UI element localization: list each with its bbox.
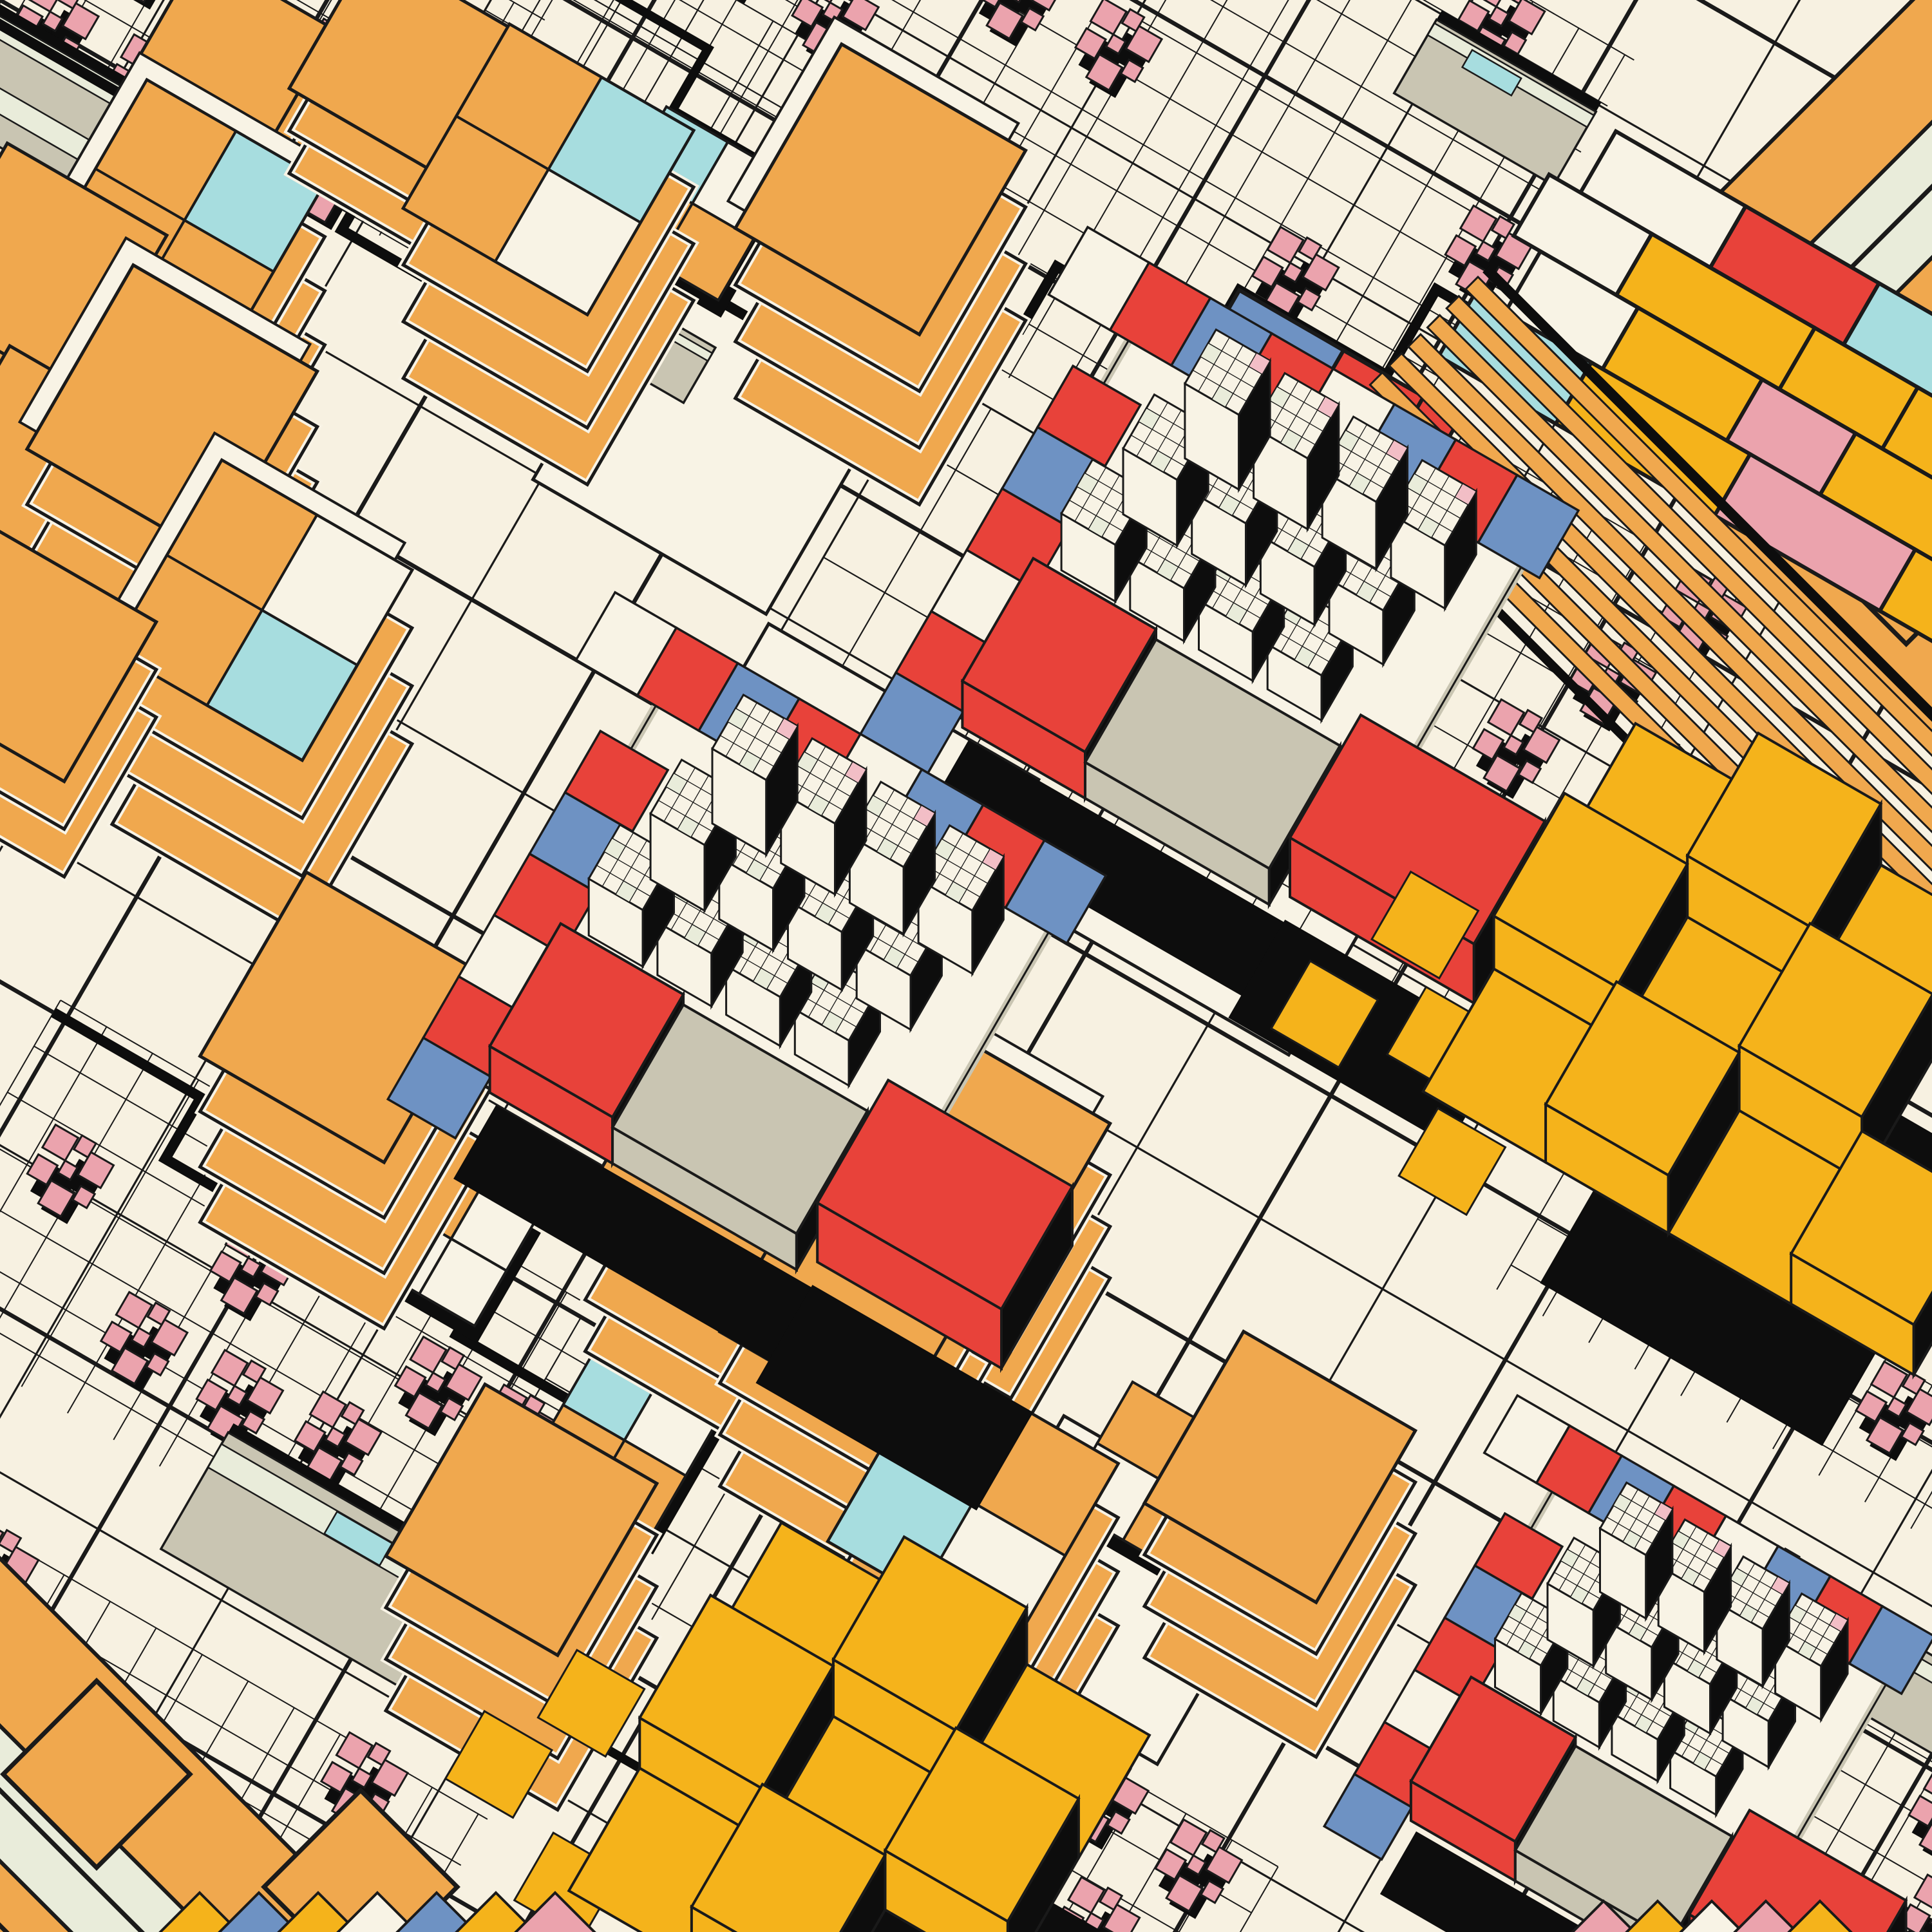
generative-artwork: [0, 0, 1932, 1932]
artwork-canvas: [0, 0, 1932, 1932]
